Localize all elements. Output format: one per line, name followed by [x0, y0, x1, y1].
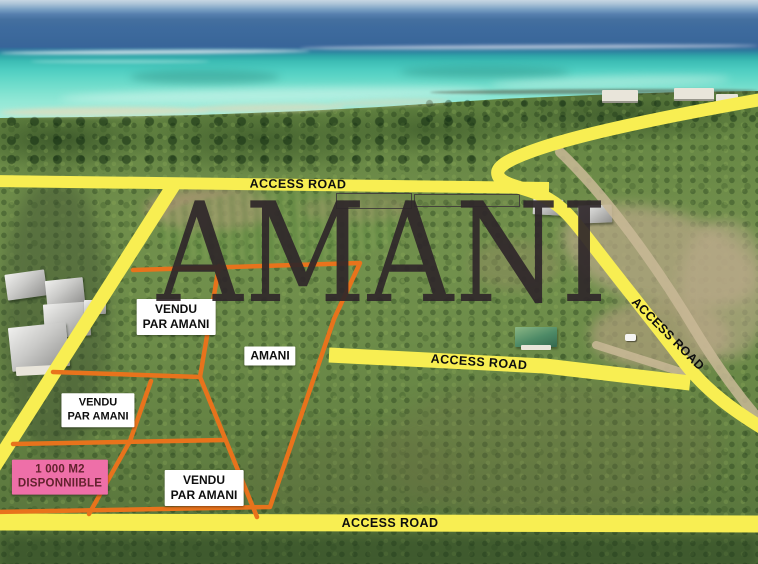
plot-divider [53, 372, 200, 377]
parked-car [625, 334, 636, 341]
available-line2: DISPONNIIBLE [18, 478, 102, 490]
road-label-bottom: ACCESS ROAD [342, 516, 439, 530]
sold-line2: PAR AMANI [171, 488, 238, 502]
plot-label-company: AMANI [244, 347, 295, 366]
plot-label-available: 1 000 M2 DISPONNIIBLE [12, 460, 108, 495]
plot-divider [13, 440, 224, 444]
aerial-photo: ACCESS ROAD ACCESS ROAD ACCESS ROAD ACCE… [0, 0, 758, 564]
plot-label-sold-2: VENDU PAR AMANI [61, 393, 134, 427]
sold-line2: PAR AMANI [67, 410, 128, 422]
brand-watermark: AMANI [157, 185, 609, 323]
available-line1: 1 000 M2 [35, 464, 85, 476]
sold-line1: VENDU [183, 473, 225, 487]
plot-label-sold-3: VENDU PAR AMANI [165, 470, 244, 506]
sold-line1: VENDU [79, 396, 118, 408]
